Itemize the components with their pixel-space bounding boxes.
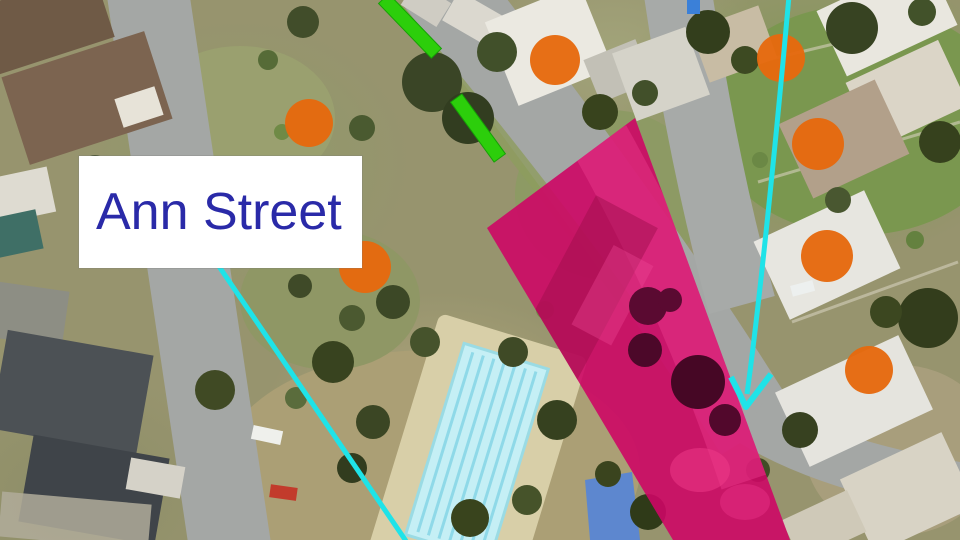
aerial-map-figure: Ann Street (0, 0, 960, 540)
blue-car (687, 0, 700, 14)
circle-marker (801, 230, 853, 282)
backyard-pool (0, 209, 44, 259)
circle-marker (530, 35, 580, 85)
street-label: Ann Street (79, 156, 362, 268)
tree (582, 94, 618, 130)
tree (632, 80, 658, 106)
circle-marker (285, 99, 333, 147)
street-label-text: Ann Street (96, 182, 342, 242)
house (0, 330, 154, 454)
circle-marker (845, 346, 893, 394)
satellite-scene (0, 0, 960, 540)
circle-marker (792, 118, 844, 170)
